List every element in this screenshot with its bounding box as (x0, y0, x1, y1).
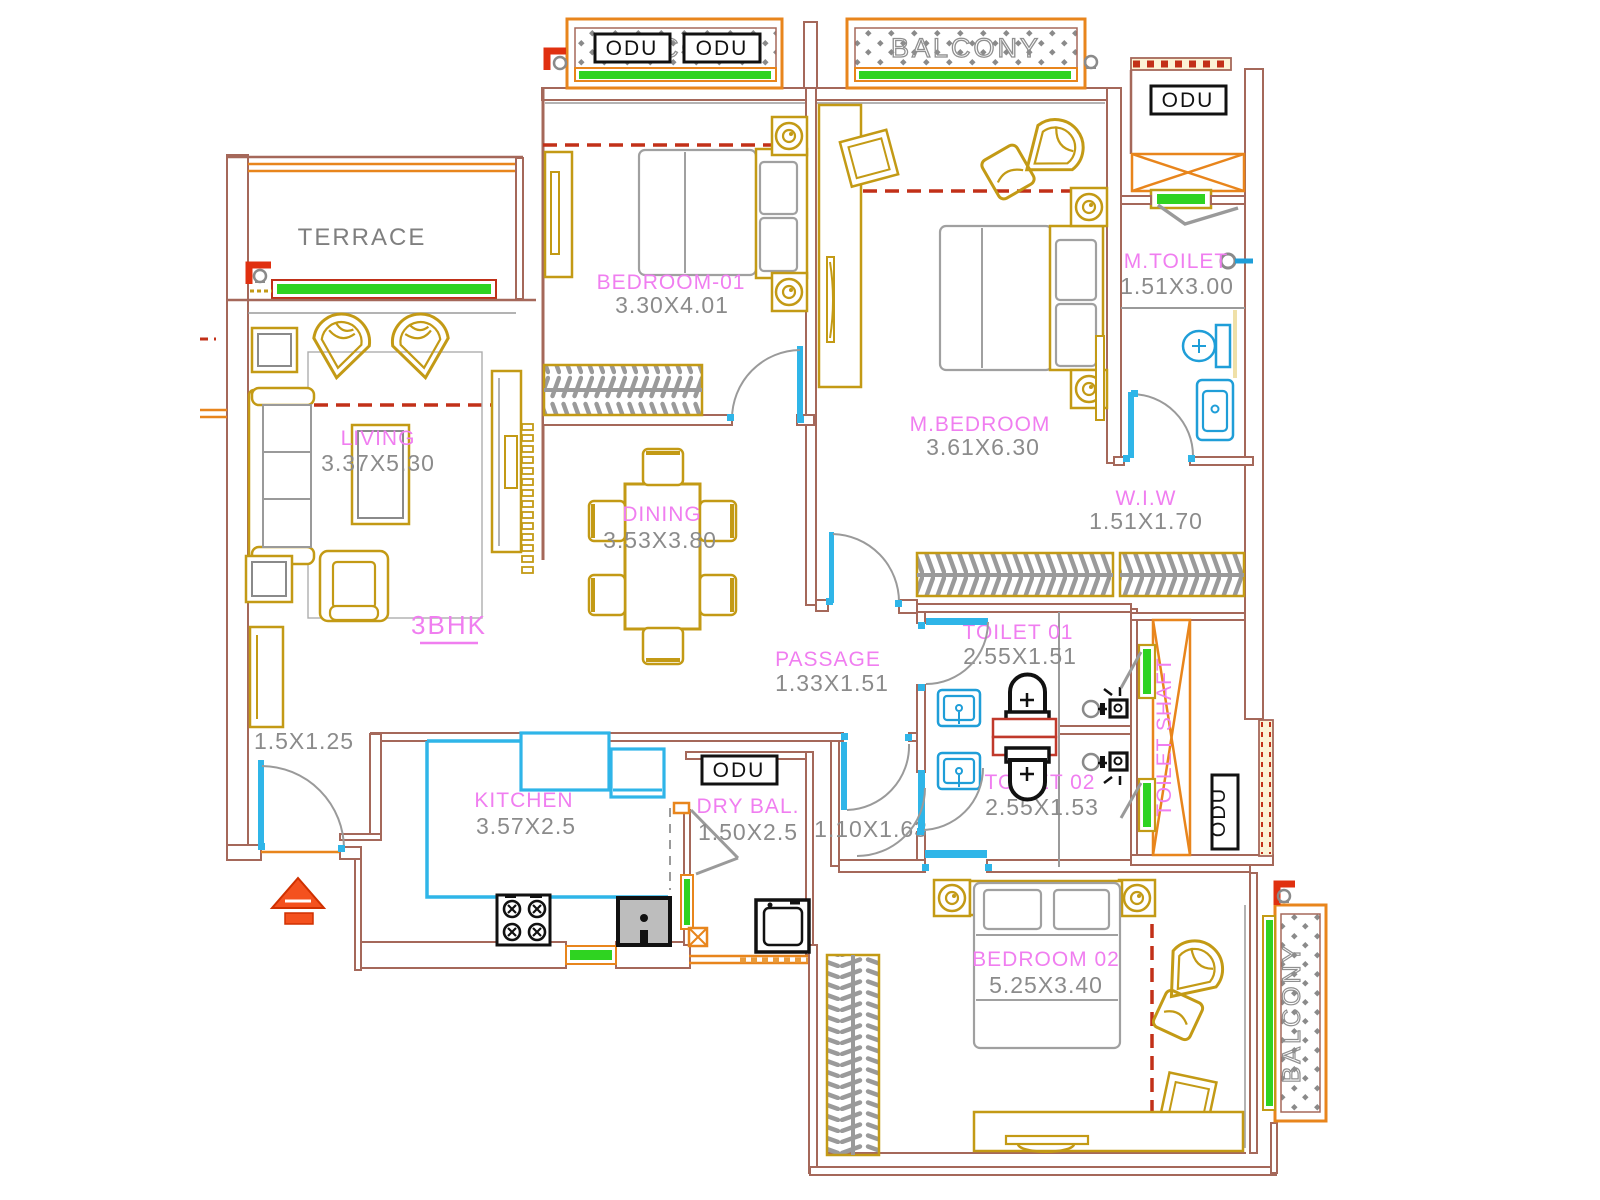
svg-text:5.25X3.40: 5.25X3.40 (989, 972, 1103, 998)
svg-text:ODU: ODU (713, 759, 766, 782)
svg-text:W.I.W: W.I.W (1116, 487, 1177, 510)
svg-text:ODU: ODU (1208, 787, 1230, 837)
svg-text:3.37X5.30: 3.37X5.30 (321, 450, 435, 476)
svg-text:PASSAGE: PASSAGE (775, 648, 881, 671)
svg-text:3.61X6.30: 3.61X6.30 (926, 434, 1040, 460)
svg-text:BEDROOM-01: BEDROOM-01 (597, 271, 746, 294)
svg-text:1.50X2.5: 1.50X2.5 (698, 819, 798, 845)
svg-text:3BHK: 3BHK (411, 610, 487, 640)
svg-text:KITCHEN: KITCHEN (474, 789, 573, 812)
svg-text:3.57X2.5: 3.57X2.5 (476, 813, 576, 839)
svg-text:ODU: ODU (1162, 89, 1215, 112)
svg-text:1.5X1.25: 1.5X1.25 (254, 728, 354, 754)
svg-text:DRY BAL.: DRY BAL. (697, 795, 800, 818)
svg-text:3.30X4.01: 3.30X4.01 (615, 292, 729, 318)
svg-text:DINING: DINING (622, 503, 702, 526)
svg-text:LIVING: LIVING (341, 427, 416, 450)
svg-text:TERRACE: TERRACE (298, 224, 427, 251)
svg-text:BALCONY: BALCONY (1278, 943, 1306, 1083)
svg-text:BEDROOM 02: BEDROOM 02 (972, 948, 1120, 971)
svg-text:2.55X1.53: 2.55X1.53 (985, 794, 1099, 820)
svg-text:1.51X1.70: 1.51X1.70 (1089, 508, 1203, 534)
svg-text:1.51X3.00: 1.51X3.00 (1120, 273, 1234, 299)
svg-text:TOILET SHAFT: TOILET SHAFT (1153, 657, 1176, 816)
svg-text:1.33X1.51: 1.33X1.51 (775, 670, 889, 696)
svg-text:BALCONY: BALCONY (891, 33, 1041, 63)
svg-text:ODU: ODU (606, 37, 659, 60)
svg-text:M.TOILET: M.TOILET (1124, 250, 1228, 273)
svg-text:M.BEDROOM: M.BEDROOM (910, 413, 1051, 436)
svg-text:ODU: ODU (696, 37, 749, 60)
svg-text:3.53X3.80: 3.53X3.80 (603, 527, 717, 553)
svg-text:2.55X1.51: 2.55X1.51 (963, 643, 1077, 669)
